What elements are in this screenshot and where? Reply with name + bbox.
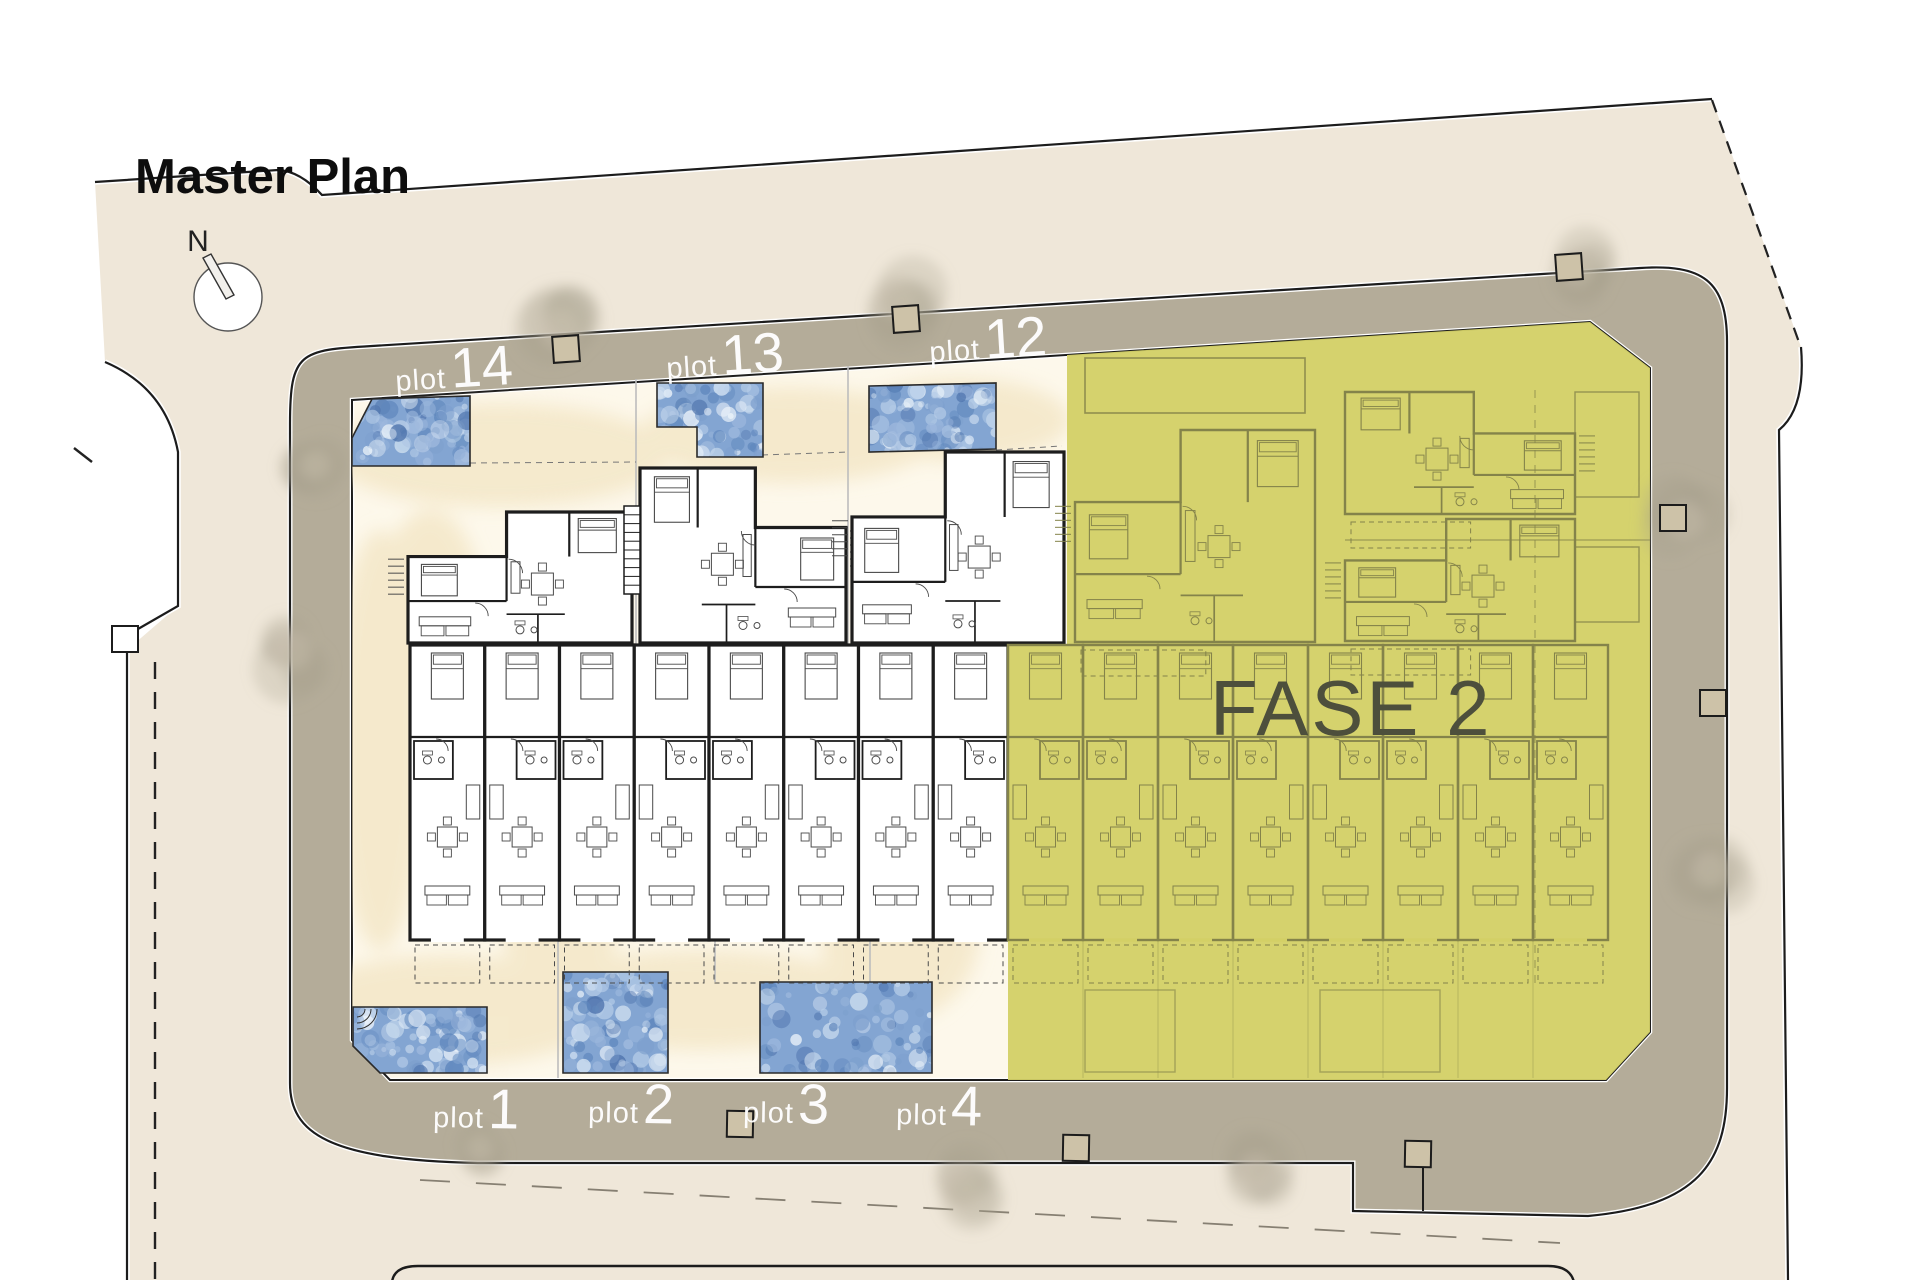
apartment-unit-plot-4 [933, 645, 1008, 983]
apartment-unit-plot-1 [410, 645, 485, 983]
utility-box [1555, 253, 1583, 281]
apartment-unit-plot-3 [709, 645, 784, 983]
swimming-pool [558, 964, 675, 1079]
utility-box [1660, 505, 1686, 531]
stairs [624, 506, 640, 594]
swimming-pool [862, 376, 1003, 459]
compass-north-label: N [187, 225, 209, 258]
swimming-pool [758, 974, 940, 1078]
utility-box [1063, 1135, 1089, 1161]
fase2-label: FASE 2 [1210, 664, 1492, 752]
tree [1224, 1129, 1295, 1207]
master-plan-page: Master Plan N plot14 plot13 plot12 plot1… [0, 0, 1920, 1280]
utility-box [892, 305, 920, 333]
utility-box [552, 335, 580, 363]
utility-box [1700, 690, 1726, 716]
apartment-unit-plot-3 [784, 645, 859, 983]
apartment-unit-plot-4 [859, 645, 934, 983]
apartment-unit-plot-2 [634, 645, 709, 983]
apartment-unit-plot-2 [560, 645, 635, 983]
apartment-unit-plot-1 [485, 645, 560, 983]
master-plan-drawing: Master Plan N plot14 plot13 plot12 plot1… [0, 0, 1920, 1280]
page-title: Master Plan [135, 150, 410, 204]
utility-box [1405, 1141, 1431, 1167]
